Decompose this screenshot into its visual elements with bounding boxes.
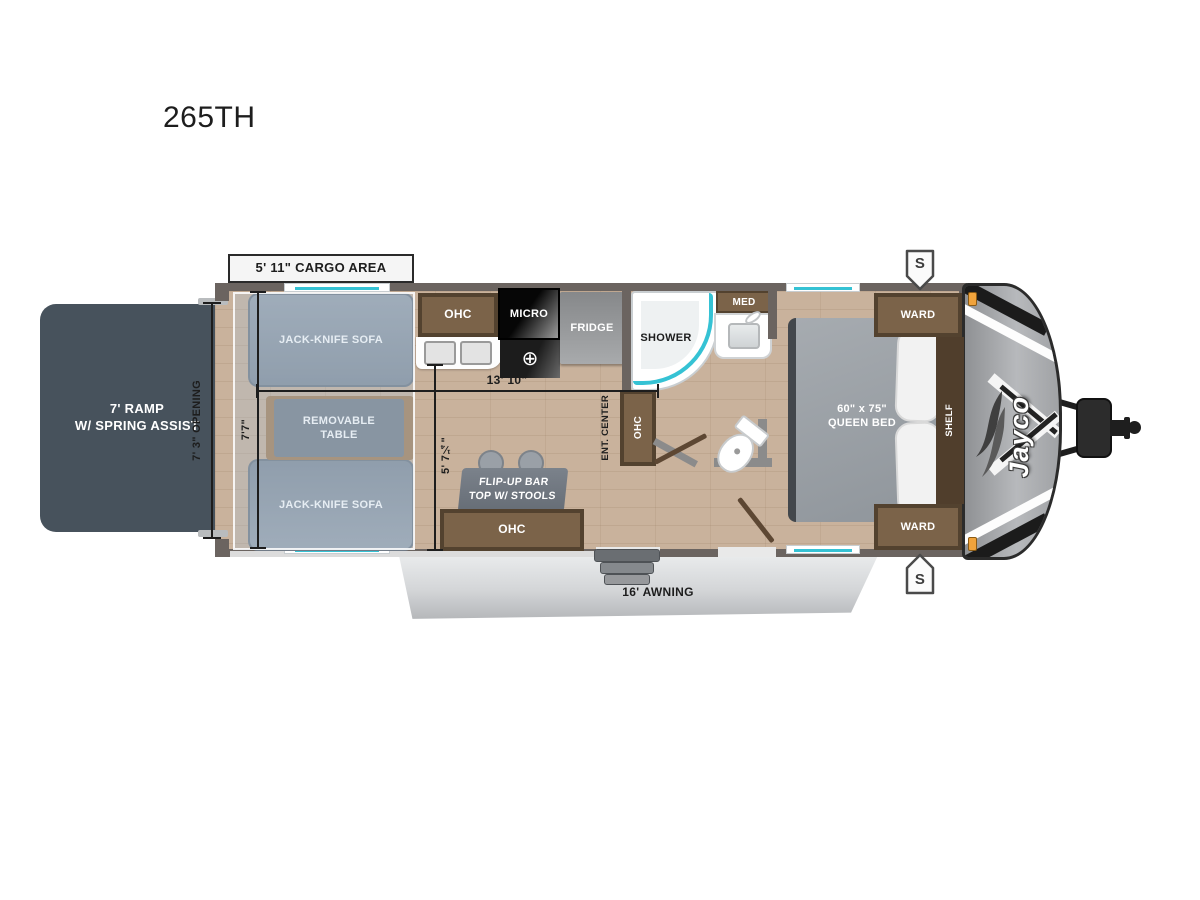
- ramp-hinge-bottom: [198, 530, 228, 537]
- speaker-top: S: [905, 249, 935, 291]
- shelf-label: SHELF: [944, 404, 956, 437]
- opening-dim-line: [211, 303, 213, 537]
- bath-wall-left: [622, 291, 631, 391]
- kitchen-ohc: OHC: [418, 293, 498, 337]
- speaker-bottom-label: S: [905, 570, 935, 590]
- main-dim-label: 13' 10": [462, 373, 552, 389]
- sink-basin-right: [460, 341, 492, 365]
- front-shelf: SHELF: [936, 337, 964, 504]
- marker-light-top: [968, 292, 977, 306]
- queen-bed: 60" x 75" QUEEN BED: [788, 318, 940, 522]
- galley-dim-cap-top: [427, 364, 443, 366]
- sink-basin-left: [424, 341, 456, 365]
- entry-step-1: [594, 549, 660, 562]
- opening-dim-cap-bottom: [203, 537, 221, 539]
- window-bedroom-top: [786, 283, 860, 292]
- jack-knife-sofa-top: JACK-KNIFE SOFA: [248, 293, 414, 387]
- sofa-top-label: JACK-KNIFE SOFA: [279, 333, 383, 347]
- garage-dim-line: [257, 291, 259, 549]
- bar-ohc: OHC: [440, 509, 584, 551]
- speaker-bottom: S: [905, 553, 935, 595]
- awning-label: 16' AWNING: [598, 585, 718, 601]
- entry-step-2: [600, 562, 654, 574]
- ent-center-ohc-label: OHC: [632, 416, 645, 439]
- flip-up-bar-label: FLIP-UP BAR TOP W/ STOOLS: [468, 476, 558, 503]
- propane-cover: [1076, 398, 1112, 458]
- wardrobe-bottom: WARD: [874, 504, 962, 550]
- shower-label: SHOWER: [635, 331, 697, 345]
- wall-stub-bottom: [215, 539, 229, 557]
- sofa-bottom-label: JACK-KNIFE SOFA: [279, 498, 383, 512]
- cargo-area-label: 5' 11" CARGO AREA: [256, 260, 387, 277]
- cargo-area-label-box: 5' 11" CARGO AREA: [228, 254, 414, 283]
- ent-center-label: ENT. CENTER: [600, 395, 612, 461]
- hitch-ball-socket: [1128, 421, 1141, 434]
- main-dim-line: [257, 390, 659, 392]
- bath-vanity: [714, 313, 772, 359]
- fridge: FRIDGE: [560, 292, 624, 364]
- kitchen-ohc-label: OHC: [444, 307, 472, 323]
- opening-dim-cap-top: [203, 302, 221, 304]
- main-dim-cap-right: [657, 384, 659, 398]
- garage-dim-label: 7'7": [239, 419, 253, 440]
- window-bedroom-bottom: [786, 545, 860, 554]
- bath-wall-right: [768, 291, 777, 339]
- bar-ohc-label: OHC: [498, 522, 526, 538]
- brand-logo: Jayco: [1004, 396, 1035, 478]
- flip-up-bar: FLIP-UP BAR TOP W/ STOOLS: [458, 468, 569, 512]
- fridge-label: FRIDGE: [570, 321, 613, 335]
- page-title: 265TH: [163, 101, 256, 135]
- wardrobe-top-label: WARD: [901, 308, 936, 322]
- marker-light-bottom: [968, 537, 977, 551]
- floorplan-canvas: 265TH 16' AWNING 7' RAMP W/ SPRING ASSIS…: [0, 0, 1200, 900]
- entry-step-3: [604, 574, 650, 585]
- main-dim-cap-left: [256, 384, 258, 398]
- galley-dim-cap-bottom: [427, 549, 443, 551]
- garage-dim-cap-bottom: [250, 547, 266, 549]
- med-label: MED: [732, 296, 755, 309]
- wardrobe-top: WARD: [874, 293, 962, 337]
- jack-knife-sofa-bottom: JACK-KNIFE SOFA: [248, 459, 414, 551]
- microwave: MICRO: [498, 288, 560, 340]
- opening-dim-label: 7' 3" OPENING: [190, 380, 204, 461]
- speaker-top-label: S: [905, 254, 935, 274]
- galley-dim-label: 5' 7¼": [439, 437, 453, 474]
- vanity-sink: [728, 323, 760, 349]
- burner-icon: ⊕: [522, 349, 539, 369]
- wall-stub-top: [215, 283, 229, 301]
- wardrobe-bottom-label: WARD: [901, 520, 936, 534]
- garage-dim-cap-top: [250, 291, 266, 293]
- window-cargo-top: [284, 283, 390, 292]
- ramp-label: 7' RAMP W/ SPRING ASSIST: [75, 401, 199, 435]
- entry-opening-main: [718, 547, 776, 557]
- removable-table: REMOVABLE TABLE: [274, 399, 404, 457]
- table-label: REMOVABLE TABLE: [303, 414, 375, 443]
- ent-center-ohc: OHC: [620, 390, 656, 466]
- microwave-label: MICRO: [510, 307, 548, 321]
- med-cabinet: MED: [716, 291, 772, 313]
